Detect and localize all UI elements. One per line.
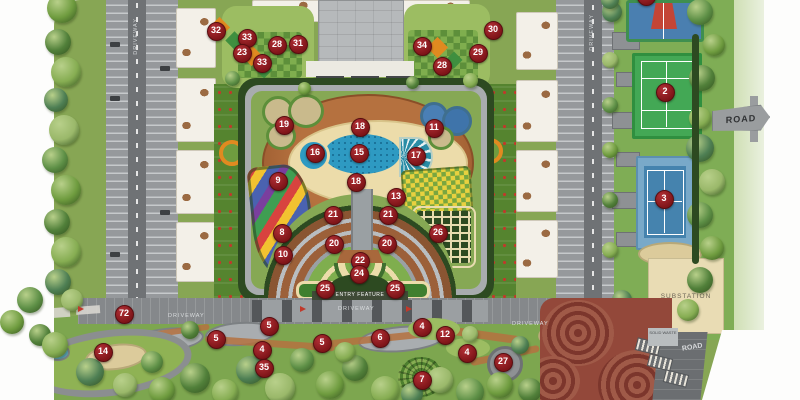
marker-4: 4 <box>413 318 432 337</box>
marker-5: 5 <box>313 334 332 353</box>
marker-2: 2 <box>656 83 675 102</box>
marker-25: 25 <box>386 280 405 299</box>
marker-72: 72 <box>115 305 134 324</box>
marker-14: 14 <box>94 343 113 362</box>
site-plan: DRIVEWAY DRIVEWAY <box>0 0 800 400</box>
marker-13: 13 <box>387 188 406 207</box>
marker-17: 17 <box>407 147 426 166</box>
marker-20: 20 <box>378 235 397 254</box>
marker-25: 25 <box>316 280 335 299</box>
marker-8: 8 <box>273 224 292 243</box>
marker-clipped <box>637 0 656 6</box>
marker-24: 24 <box>350 265 369 284</box>
marker-26: 26 <box>429 224 448 243</box>
marker-18: 18 <box>351 118 370 137</box>
marker-4: 4 <box>458 344 477 363</box>
marker-30: 30 <box>484 21 503 40</box>
marker-28: 28 <box>268 36 287 55</box>
marker-16: 16 <box>306 144 325 163</box>
marker-7: 7 <box>413 371 432 390</box>
marker-21: 21 <box>324 206 343 225</box>
marker-28: 28 <box>433 57 452 76</box>
road-sign-label: ROAD <box>726 113 757 125</box>
driveway-label-south-1: DRIVEWAY <box>338 306 375 312</box>
marker-29: 29 <box>469 44 488 63</box>
marker-31: 31 <box>289 35 308 54</box>
marker-9: 9 <box>269 172 288 191</box>
marker-27: 27 <box>494 353 513 372</box>
marker-35: 35 <box>255 359 274 378</box>
driveway-label-south-3: DRIVEWAY <box>168 313 205 319</box>
marker-18: 18 <box>347 173 366 192</box>
marker-19: 19 <box>275 116 294 135</box>
marker-32: 32 <box>207 22 226 41</box>
marker-21: 21 <box>379 206 398 225</box>
marker-23: 23 <box>233 44 252 63</box>
driveway-label-south-2: DRIVEWAY <box>512 321 549 327</box>
marker-20: 20 <box>325 235 344 254</box>
sports-hedge-row <box>692 34 699 264</box>
marker-11: 11 <box>425 119 444 138</box>
marker-6: 6 <box>371 329 390 348</box>
marker-5: 5 <box>207 330 226 349</box>
marker-33: 33 <box>253 54 272 73</box>
marker-34: 34 <box>413 37 432 56</box>
marker-10: 10 <box>274 246 293 265</box>
marker-4: 4 <box>253 341 272 360</box>
marker-3: 3 <box>655 190 674 209</box>
solid-waste-label: SOLID WASTE <box>648 328 678 346</box>
marker-5: 5 <box>260 317 279 336</box>
marker-12: 12 <box>436 326 455 345</box>
marker-15: 15 <box>350 144 369 163</box>
